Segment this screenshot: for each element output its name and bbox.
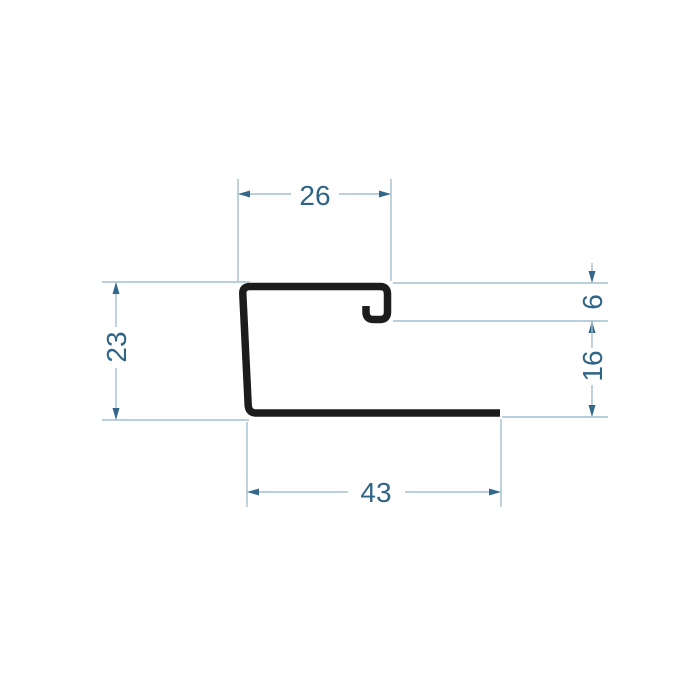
dimension-label-bottom-width: 43 xyxy=(360,477,391,508)
dimension-label-left-height: 23 xyxy=(101,331,132,362)
dimension-label-right-hook-height: 6 xyxy=(577,294,608,310)
dimension-top-width: 26 xyxy=(238,179,391,281)
arrowhead-right xyxy=(379,191,391,198)
dimension-right-hook-height: 6 xyxy=(393,263,608,333)
dimension-bottom-width: 43 xyxy=(247,419,501,508)
arrowhead-left xyxy=(247,489,259,496)
dimension-right-lower-height: 16 xyxy=(502,323,608,417)
arrowhead-down xyxy=(113,408,120,420)
arrowhead-down xyxy=(589,271,596,283)
arrowhead-up xyxy=(113,282,120,294)
profile-outline xyxy=(243,287,500,414)
arrowhead-down xyxy=(589,405,596,417)
dimension-left-height: 23 xyxy=(101,282,250,420)
arrowhead-right xyxy=(489,489,501,496)
dimension-label-top-width: 26 xyxy=(299,180,330,211)
drawing-canvas: 26 23 43 6 xyxy=(0,0,700,700)
technical-drawing: 26 23 43 6 xyxy=(0,0,700,700)
dimension-label-right-lower-height: 16 xyxy=(577,350,608,381)
arrowhead-left xyxy=(238,191,250,198)
